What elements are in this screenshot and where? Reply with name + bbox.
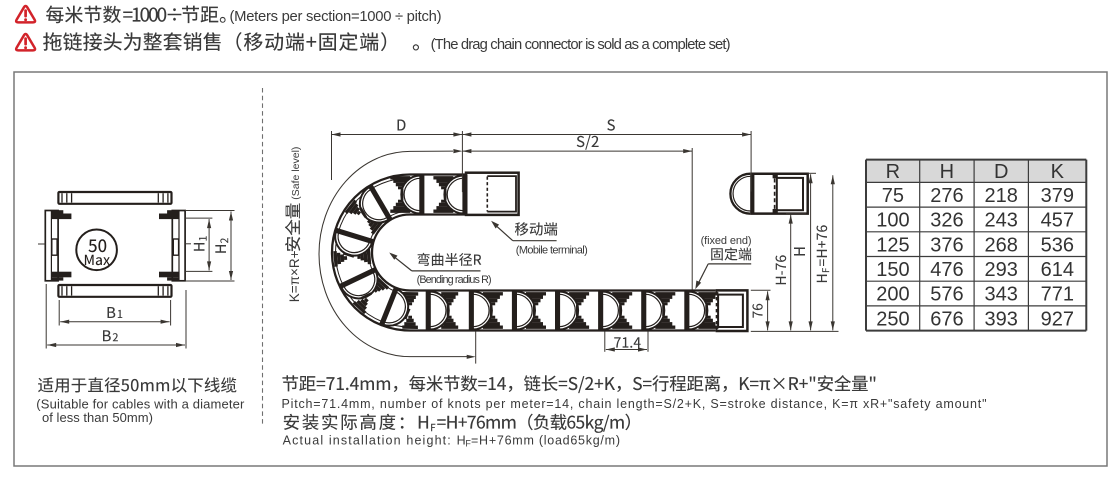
svg-text:150: 150 [876, 259, 909, 281]
svg-text:200: 200 [876, 284, 909, 306]
svg-text:250: 250 [876, 308, 909, 330]
svg-text:218: 218 [985, 185, 1018, 207]
svg-text:379: 379 [1041, 185, 1074, 207]
svg-text:(The drag chain connector is s: (The drag chain connector is sold as a c… [431, 37, 731, 53]
svg-text:K=π×R+: K=π×R+ [287, 250, 302, 302]
svg-text:100: 100 [876, 210, 909, 232]
svg-text:(fixed end): (fixed end) [701, 235, 752, 247]
svg-text:R: R [886, 161, 900, 183]
svg-text:125: 125 [876, 234, 909, 256]
svg-text:326: 326 [930, 210, 963, 232]
svg-text:D: D [994, 161, 1008, 183]
svg-text:Actual installation height: H: Actual installation height: H [283, 433, 466, 447]
svg-text:676: 676 [930, 308, 963, 330]
svg-text:393: 393 [985, 308, 1018, 330]
svg-text:K: K [1051, 161, 1065, 183]
svg-text:=H+76mm (load65kg/m): =H+76mm (load65kg/m) [471, 433, 620, 447]
svg-text:576: 576 [930, 284, 963, 306]
svg-text:of less than 50mm): of less than 50mm) [42, 410, 153, 425]
svg-text:771: 771 [1041, 284, 1074, 306]
svg-text:376: 376 [930, 234, 963, 256]
svg-text:(Meters per section=1000 ÷ pit: (Meters per section=1000 ÷ pitch) [230, 9, 442, 25]
svg-text:(Safe level): (Safe level) [290, 147, 302, 200]
svg-text:457: 457 [1041, 210, 1074, 232]
svg-text:276: 276 [930, 185, 963, 207]
svg-text:614: 614 [1041, 259, 1074, 281]
svg-text:268: 268 [985, 234, 1018, 256]
svg-text:Pitch=71.4mm, number of knots: Pitch=71.4mm, number of knots per meter=… [282, 397, 987, 411]
svg-text:H: H [940, 161, 954, 183]
svg-text:(Bending radius R): (Bending radius R) [417, 274, 492, 286]
svg-text:293: 293 [985, 259, 1018, 281]
svg-text:476: 476 [930, 259, 963, 281]
svg-text:75: 75 [882, 185, 904, 207]
svg-text:343: 343 [985, 284, 1018, 306]
svg-text:(Mobile terminal): (Mobile terminal) [516, 245, 588, 257]
svg-text:927: 927 [1041, 308, 1074, 330]
svg-text:243: 243 [985, 210, 1018, 232]
svg-text:536: 536 [1041, 234, 1074, 256]
